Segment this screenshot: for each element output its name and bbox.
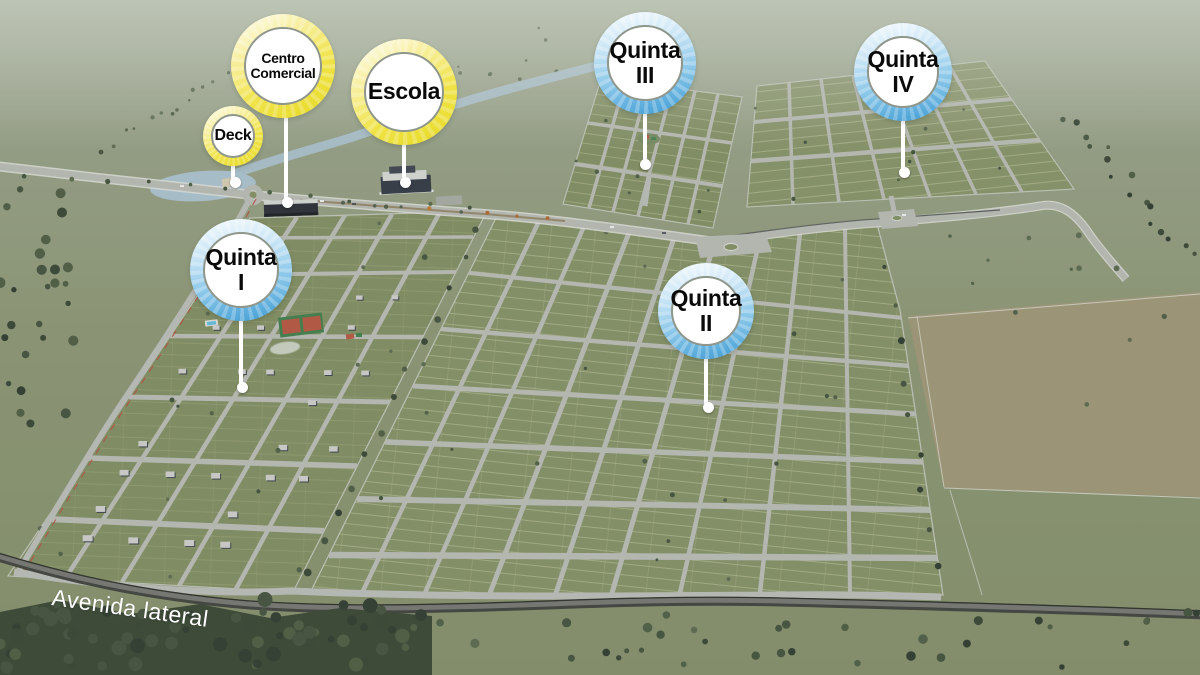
marker-deck[interactable]: Deck bbox=[203, 106, 263, 166]
marker-label-line2: III bbox=[636, 63, 654, 88]
marker-anchor-dot bbox=[899, 167, 910, 178]
marker-centro-comercial[interactable]: Centro Comercial bbox=[231, 14, 335, 118]
marker-stem bbox=[704, 353, 708, 405]
marker-stem bbox=[239, 315, 243, 385]
marker-label-line2: IV bbox=[892, 72, 913, 97]
marker-escola[interactable]: Escola bbox=[351, 39, 457, 145]
marker-anchor-dot bbox=[230, 177, 241, 188]
marker-label-line2: II bbox=[700, 311, 712, 336]
marker-label: Deck bbox=[214, 127, 251, 145]
marker-label-line2: I bbox=[238, 270, 244, 295]
marker-quinta-iii[interactable]: Quinta III bbox=[594, 12, 696, 114]
marker-stem bbox=[901, 115, 905, 171]
marker-anchor-dot bbox=[640, 159, 651, 170]
marker-label: Quinta bbox=[609, 38, 680, 63]
marker-anchor-dot bbox=[237, 382, 248, 393]
marker-label: Quinta bbox=[670, 286, 741, 311]
marker-quinta-iv[interactable]: Quinta IV bbox=[854, 23, 952, 121]
marker-label: Quinta bbox=[205, 245, 276, 270]
marker-stem bbox=[284, 110, 288, 204]
marker-label: Escola bbox=[368, 79, 440, 104]
aerial-scene bbox=[0, 0, 1200, 675]
marker-anchor-dot bbox=[400, 177, 411, 188]
marker-quinta-i[interactable]: Quinta I bbox=[190, 219, 292, 321]
marker-stem bbox=[402, 140, 406, 180]
marker-anchor-dot bbox=[282, 197, 293, 208]
marker-label-line2: Comercial bbox=[251, 66, 316, 81]
marker-anchor-dot bbox=[703, 402, 714, 413]
marker-label: Quinta bbox=[867, 47, 938, 72]
masterplan-canvas: Centro Comercial Escola Deck Quinta I Qu… bbox=[0, 0, 1200, 675]
marker-quinta-ii[interactable]: Quinta II bbox=[658, 263, 754, 359]
mist-overlay bbox=[0, 0, 1200, 675]
marker-stem bbox=[643, 108, 647, 163]
